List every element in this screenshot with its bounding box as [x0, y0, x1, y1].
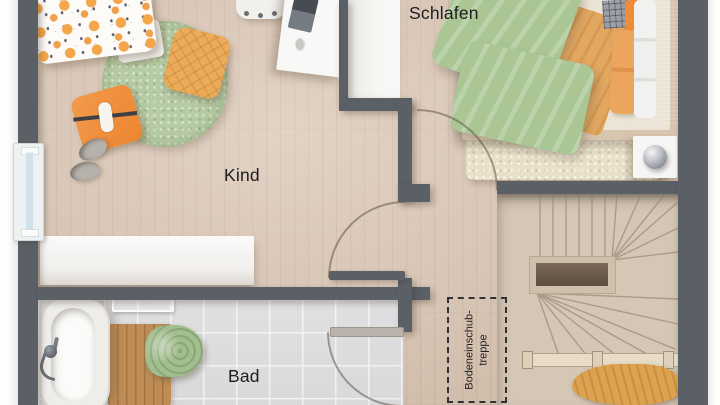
- floor-plan: Bodeneinschub- treppe Schlafen Kind Bad: [0, 0, 720, 405]
- stairwell-opening: [529, 256, 616, 294]
- attic-ladder-label-line2: treppe: [477, 295, 491, 405]
- room-label-schlafen: Schlafen: [409, 3, 479, 24]
- desk-chair: [236, 0, 286, 19]
- attic-ladder-label-line1: Bodeneinschub-: [463, 295, 477, 405]
- mouse-icon: [295, 38, 304, 50]
- laptop-icon: [288, 0, 319, 33]
- blanket: [572, 364, 680, 405]
- bad-door-leaf: [330, 327, 404, 337]
- double-bed: [462, 0, 678, 142]
- sideboard: [40, 236, 254, 285]
- railing-post: [663, 351, 674, 369]
- kind-door-leaf: [329, 271, 405, 280]
- exterior-right: [708, 0, 720, 405]
- toy-doll: [97, 101, 114, 133]
- railing-post: [522, 351, 533, 369]
- wall-right: [678, 0, 708, 405]
- room-label-kind: Kind: [224, 165, 260, 186]
- headboard: [650, 0, 678, 124]
- wardrobe: [348, 0, 400, 98]
- window-icon: [13, 143, 44, 241]
- staircase: [497, 194, 678, 405]
- stairwell-void: [536, 263, 608, 286]
- wall-pier-top: [398, 184, 430, 202]
- shower-head-icon: [44, 345, 57, 358]
- table-lamp-icon: [643, 145, 667, 169]
- wall-pier-bottom: [398, 278, 412, 332]
- towel-bar: [112, 298, 174, 312]
- wall-bad-top: [38, 287, 430, 300]
- nightstand: [633, 136, 677, 178]
- room-label-bad: Bad: [228, 366, 260, 387]
- attic-ladder-area: Bodeneinschub- treppe: [447, 297, 507, 403]
- wall-kind-schlafen: [339, 0, 348, 101]
- window-frame-bottom: [21, 229, 39, 237]
- window-glass: [25, 152, 34, 234]
- wall-schlafen-bottom: [497, 181, 678, 194]
- attic-ladder-label: Bodeneinschub- treppe: [463, 295, 491, 405]
- slipper: [68, 159, 101, 184]
- kind-door-arc: [329, 202, 405, 278]
- chair-wheels: [244, 11, 249, 16]
